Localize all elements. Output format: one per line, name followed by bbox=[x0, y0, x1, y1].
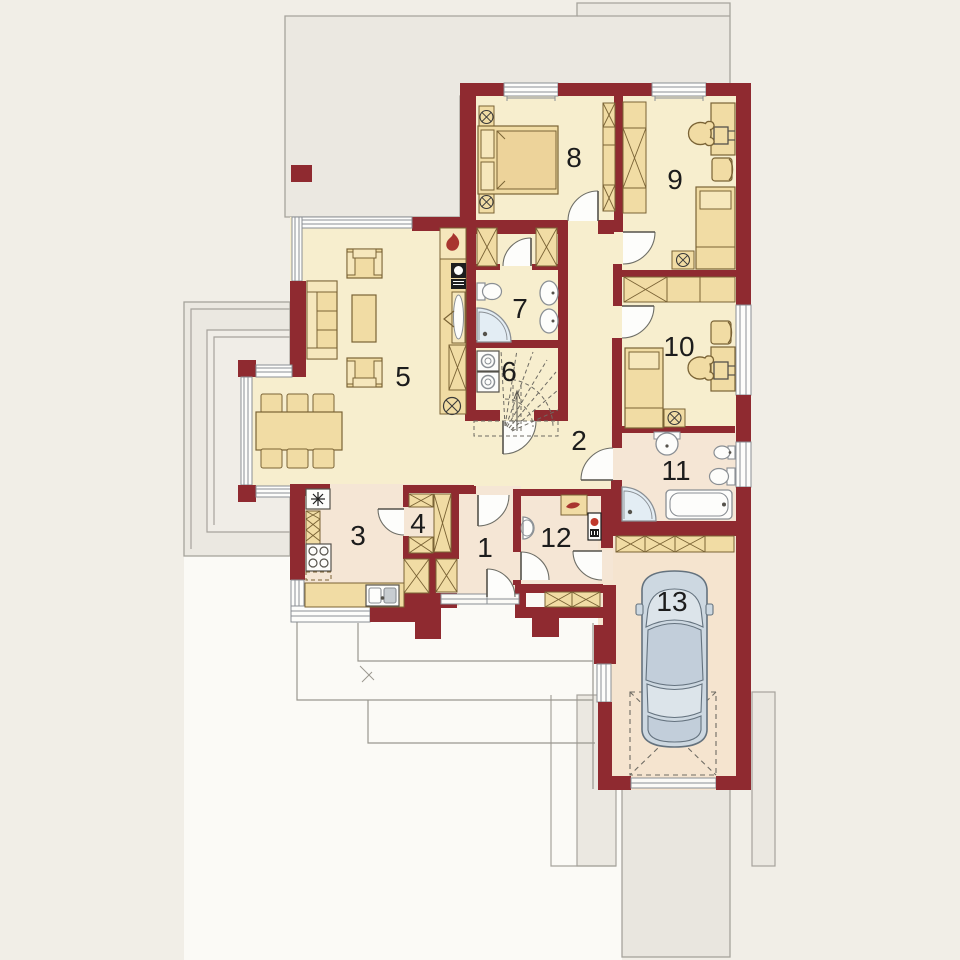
svg-text:3: 3 bbox=[350, 520, 366, 551]
svg-text:6: 6 bbox=[501, 356, 517, 387]
svg-text:9: 9 bbox=[667, 164, 683, 195]
svg-text:12: 12 bbox=[540, 522, 571, 553]
svg-text:7: 7 bbox=[512, 293, 528, 324]
svg-text:1: 1 bbox=[477, 532, 493, 563]
svg-text:2: 2 bbox=[571, 425, 587, 456]
svg-text:8: 8 bbox=[566, 142, 582, 173]
svg-text:10: 10 bbox=[663, 331, 694, 362]
svg-text:11: 11 bbox=[661, 455, 690, 486]
svg-text:4: 4 bbox=[410, 508, 426, 539]
svg-text:5: 5 bbox=[395, 361, 411, 392]
svg-text:13: 13 bbox=[656, 586, 687, 617]
